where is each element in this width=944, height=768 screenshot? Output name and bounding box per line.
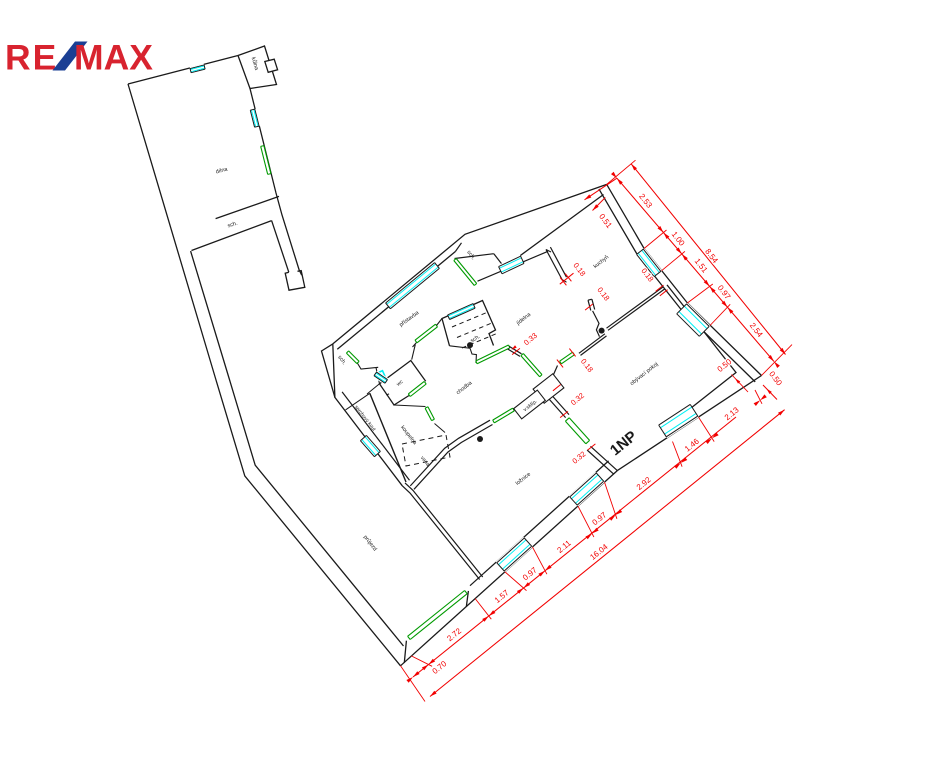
svg-text:RE: RE: [5, 38, 58, 78]
svg-text:0.18: 0.18: [595, 285, 611, 302]
svg-text:0.50: 0.50: [767, 370, 784, 388]
svg-text:wc: wc: [396, 379, 405, 388]
svg-text:ložnice: ložnice: [515, 472, 532, 487]
svg-text:průjezd: průjezd: [362, 534, 379, 553]
svg-text:0.97: 0.97: [591, 510, 609, 527]
svg-text:2.53: 2.53: [637, 192, 654, 210]
svg-text:2.72: 2.72: [445, 626, 463, 643]
svg-text:1.51: 1.51: [693, 257, 710, 275]
svg-text:jídelna: jídelna: [515, 311, 533, 327]
svg-text:sch.: sch.: [465, 250, 476, 262]
svg-text:1.46: 1.46: [683, 436, 701, 453]
svg-text:kuchyň: kuchyň: [593, 254, 610, 269]
svg-text:sch.: sch.: [227, 221, 239, 230]
svg-text:0.97: 0.97: [521, 565, 539, 582]
svg-text:1NP: 1NP: [607, 428, 640, 460]
svg-text:16.04: 16.04: [588, 542, 610, 562]
svg-text:2.54: 2.54: [748, 321, 765, 339]
svg-text:0.32: 0.32: [570, 449, 587, 465]
svg-text:0.50: 0.50: [716, 357, 734, 374]
svg-text:0.18: 0.18: [571, 261, 587, 278]
svg-text:0.51: 0.51: [597, 212, 614, 230]
svg-text:koupelna: koupelna: [399, 425, 418, 447]
svg-text:2.11: 2.11: [555, 538, 573, 555]
svg-text:0.33: 0.33: [522, 331, 539, 347]
svg-text:obývací pokoj: obývací pokoj: [629, 361, 659, 386]
svg-text:2.13: 2.13: [723, 405, 741, 422]
svg-text:0.18: 0.18: [579, 357, 595, 374]
svg-text:0.32: 0.32: [569, 391, 586, 407]
svg-text:chodba: chodba: [455, 380, 474, 396]
svg-text:1.00: 1.00: [670, 230, 687, 248]
svg-text:1.57: 1.57: [493, 588, 511, 605]
svg-text:2.92: 2.92: [635, 475, 653, 492]
svg-text:sprchový kout: sprchový kout: [353, 404, 377, 432]
svg-text:kůlna: kůlna: [250, 56, 261, 71]
svg-text:sch.: sch.: [336, 355, 347, 367]
svg-text:MAX: MAX: [74, 38, 153, 78]
svg-text:dílna: dílna: [215, 166, 229, 175]
svg-text:sch.: sch.: [470, 334, 482, 345]
svg-text:přístavba: přístavba: [398, 310, 421, 329]
